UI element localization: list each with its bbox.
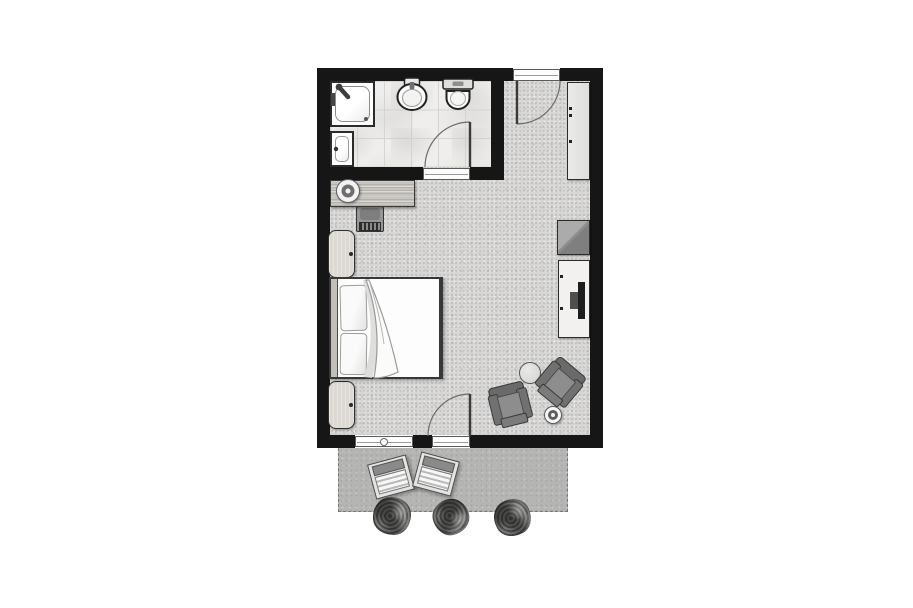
vanity-sink <box>330 131 354 167</box>
wall-right <box>590 68 603 448</box>
window <box>355 436 413 447</box>
wall-top-left <box>317 68 513 81</box>
door-slab-line <box>425 174 468 175</box>
shrub <box>373 497 411 535</box>
shower <box>330 81 375 127</box>
double-bed <box>329 277 443 379</box>
wall-bottom-left <box>317 435 355 448</box>
bathroom-partition-wall <box>491 81 504 180</box>
nightstand <box>328 230 355 278</box>
shower-tray <box>335 86 370 122</box>
wall-bottom-pier <box>413 435 432 448</box>
floor-plan <box>0 0 913 608</box>
vanity-basin <box>335 136 349 162</box>
entrance-door-threshold <box>513 69 560 81</box>
lamp-core <box>346 189 351 194</box>
bathroom-lower-wall-right <box>470 167 504 180</box>
console-knob <box>560 307 563 310</box>
nightstand <box>328 381 355 429</box>
floor-lamp-core <box>551 413 555 417</box>
wall-bottom-right <box>470 435 603 448</box>
nightstand-handle <box>349 403 353 407</box>
wardrobe-knob <box>569 114 572 117</box>
window-handle <box>380 438 388 446</box>
floor-lamp <box>544 406 562 424</box>
desk-lamp <box>336 179 360 203</box>
headboard <box>331 279 338 377</box>
nightstand-handle <box>349 252 353 256</box>
wardrobe-knob <box>569 140 572 143</box>
bathroom-lower-wall-left <box>317 167 423 180</box>
tv <box>578 282 585 319</box>
console-knob <box>560 275 563 278</box>
door-slab-line <box>434 442 468 443</box>
chair-cushion <box>360 208 380 220</box>
door-slab-line <box>515 75 558 76</box>
minibar-cabinet <box>557 220 590 255</box>
wardrobe <box>567 82 590 180</box>
pillow <box>340 333 368 375</box>
bathroom-door-threshold <box>423 168 470 180</box>
tv-sideboard <box>558 260 590 338</box>
desk-chair <box>356 205 384 232</box>
terrace-door-threshold <box>432 436 470 447</box>
chair-back-ribs <box>359 222 381 231</box>
pillow <box>339 285 367 332</box>
wardrobe-knob <box>569 107 572 110</box>
